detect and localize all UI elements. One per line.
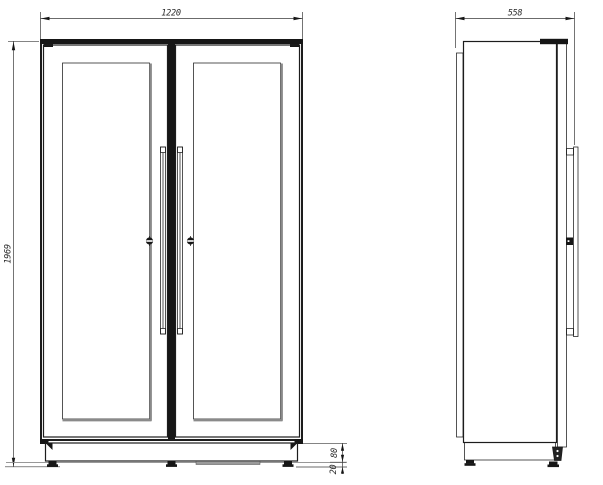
- handle-bracket-top: [567, 149, 574, 156]
- side-door: [558, 43, 567, 447]
- plinth: [46, 443, 298, 461]
- width-dimension: 1220: [41, 9, 303, 40]
- plinth-corner-right: [291, 444, 298, 451]
- plinth-corner-left: [46, 444, 53, 451]
- back-panel: [457, 53, 464, 437]
- plinth-dimension-label: 80: [330, 448, 340, 458]
- leveling-foot: [465, 460, 476, 466]
- side-body-outline: [464, 42, 557, 443]
- base-vent-shadow: [196, 461, 260, 464]
- leveling-foot: [47, 461, 58, 467]
- arrowhead: [456, 17, 465, 20]
- arrowhead: [341, 467, 344, 473]
- width-dimension-label: 1220: [161, 9, 181, 19]
- side-plinth: [465, 443, 556, 461]
- front-view: 1220 1969: [4, 9, 348, 475]
- center-divider: [168, 42, 175, 439]
- height-dimension-label: 1969: [4, 244, 14, 264]
- leveling-foot: [166, 461, 177, 467]
- depth-dimension-label: 558: [508, 9, 523, 19]
- foot-dimension-label: 20: [329, 465, 339, 475]
- leveling-foot: [548, 462, 560, 468]
- handle-bar: [574, 147, 579, 337]
- leveling-foot: [283, 461, 294, 467]
- cabinet-technical-drawing: 1220 1969: [0, 0, 603, 485]
- side-bottom-hinge: [553, 447, 563, 461]
- arrowhead: [341, 444, 344, 451]
- arrowhead: [341, 455, 344, 462]
- technical-drawing-canvas: 1220 1969: [0, 0, 603, 485]
- side-top-cap: [540, 39, 568, 44]
- arrowhead: [41, 17, 50, 20]
- arrowhead: [566, 17, 575, 20]
- plinth-dimension: 80 20: [296, 443, 347, 474]
- side-door-lock: [566, 238, 573, 246]
- handle-bracket-bottom: [567, 329, 574, 336]
- side-view: 558: [456, 9, 579, 468]
- arrowhead: [294, 17, 303, 20]
- arrowhead: [12, 42, 15, 51]
